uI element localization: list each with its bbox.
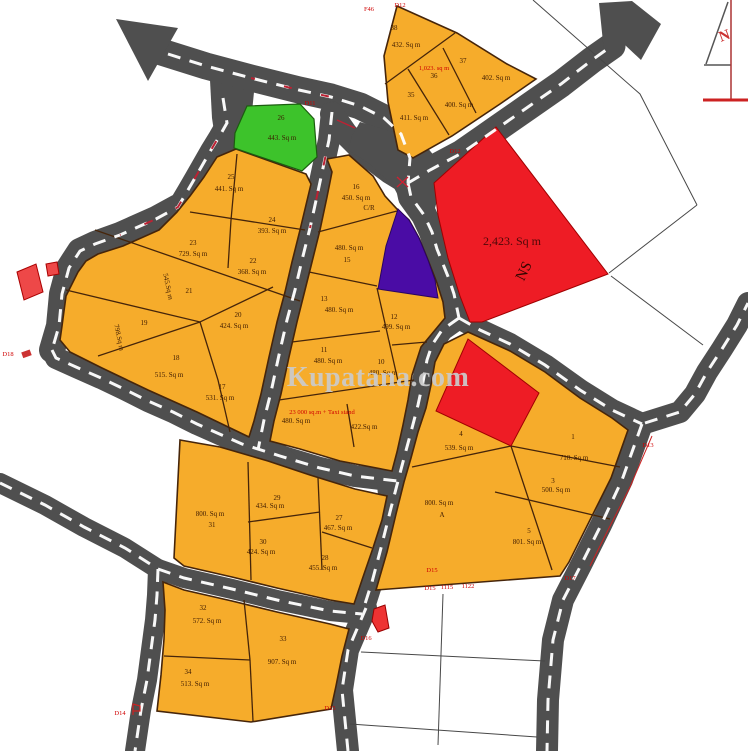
svg-text:Kupatana.com: Kupatana.com [287,362,470,393]
svg-text:27: 27 [336,514,344,522]
svg-text:17: 17 [219,383,227,391]
svg-text:441. Sq m: 441. Sq m [215,185,244,193]
svg-text:30: 30 [260,538,268,546]
svg-text:20: 20 [235,311,243,319]
svg-text:23: 23 [190,239,198,247]
svg-text:D12: D12 [394,2,405,9]
svg-text:1,023. sq m: 1,023. sq m [419,65,449,72]
svg-text:26: 26 [278,114,286,122]
svg-text:21: 21 [186,287,194,295]
svg-text:D14: D14 [114,710,126,717]
svg-text:434. Sq m: 434. Sq m [256,502,285,510]
svg-text:800. Sq m: 800. Sq m [425,499,454,507]
svg-text:729. Sq m: 729. Sq m [179,250,208,258]
svg-text:1115: 1115 [441,584,454,591]
svg-text:D18: D18 [2,351,13,358]
svg-text:2,423. Sq m: 2,423. Sq m [483,234,542,248]
svg-text:D13: D13 [642,442,653,449]
svg-text:15: 15 [344,256,352,264]
svg-text:F46: F46 [364,6,375,13]
svg-text:D11: D11 [305,100,316,107]
svg-text:800. Sq m: 800. Sq m [196,510,225,518]
svg-text:D12: D12 [449,148,460,155]
svg-text:500. Sq m: 500. Sq m [542,486,571,494]
svg-text:12: 12 [391,313,399,321]
svg-text:34: 34 [185,668,193,676]
svg-text:38: 38 [391,24,399,32]
svg-text:33: 33 [280,635,288,643]
svg-text:531. Sq m: 531. Sq m [206,394,235,402]
svg-text:1122: 1122 [462,583,475,590]
svg-text:29: 29 [274,494,282,502]
svg-text:1: 1 [571,433,575,441]
svg-text:37: 37 [460,57,468,65]
svg-text:3: 3 [551,477,555,485]
svg-text:450. Sq m: 450. Sq m [342,194,371,202]
svg-text:36: 36 [431,72,439,80]
svg-text:25: 25 [228,173,236,181]
svg-text:455. Sq m: 455. Sq m [309,564,338,572]
svg-text:513. Sq m: 513. Sq m [181,680,210,688]
svg-text:424. Sq m: 424. Sq m [220,322,249,330]
svg-text:539. Sq m: 539. Sq m [445,444,474,452]
svg-text:D16: D16 [360,635,372,642]
svg-text:5: 5 [527,527,531,535]
svg-text:572. Sq m: 572. Sq m [193,617,222,625]
svg-text:D17: D17 [564,575,576,582]
svg-text:393. Sq m: 393. Sq m [258,227,287,235]
svg-text:31: 31 [209,521,217,529]
svg-text:443. Sq m: 443. Sq m [268,134,297,142]
svg-text:28: 28 [322,554,330,562]
svg-text:710. Sq m: 710. Sq m [560,454,589,462]
svg-text:499. Sq m: 499. Sq m [382,323,411,331]
svg-text:402. Sq m: 402. Sq m [482,74,511,82]
svg-text:368. Sq m: 368. Sq m [238,268,267,276]
svg-text:480. Sq m: 480. Sq m [335,244,364,252]
svg-text:400. Sq m: 400. Sq m [445,101,474,109]
svg-text:D15: D15 [426,567,437,574]
svg-text:22: 22 [250,257,258,265]
svg-text:907. Sq m: 907. Sq m [268,658,297,666]
svg-text:19: 19 [141,319,149,327]
svg-text:11: 11 [321,346,328,354]
svg-text:A: A [439,511,444,519]
svg-text:801. Sq m: 801. Sq m [513,538,542,546]
svg-text:480. Sq m: 480. Sq m [325,306,354,314]
svg-text:23 000 sq.m + Taxi stand: 23 000 sq.m + Taxi stand [289,409,355,416]
svg-text:C/R: C/R [363,204,375,212]
svg-text:4: 4 [459,430,463,438]
svg-text:432. Sq m: 432. Sq m [392,41,421,49]
svg-text:467. Sq m: 467. Sq m [324,524,353,532]
svg-text:D15: D15 [424,585,435,592]
svg-text:411. Sq m: 411. Sq m [400,114,429,122]
svg-text:18: 18 [173,354,181,362]
svg-text:D15: D15 [324,705,335,712]
svg-text:480. Sq m: 480. Sq m [282,417,311,425]
svg-text:515. Sq m: 515. Sq m [155,371,184,379]
svg-text:24: 24 [269,216,277,224]
svg-text:424. Sq m: 424. Sq m [247,548,276,556]
svg-text:32: 32 [200,604,208,612]
svg-text:35: 35 [408,91,416,99]
svg-text:422.Sq m: 422.Sq m [351,423,378,431]
svg-text:16: 16 [353,183,361,191]
svg-text:13: 13 [321,295,329,303]
